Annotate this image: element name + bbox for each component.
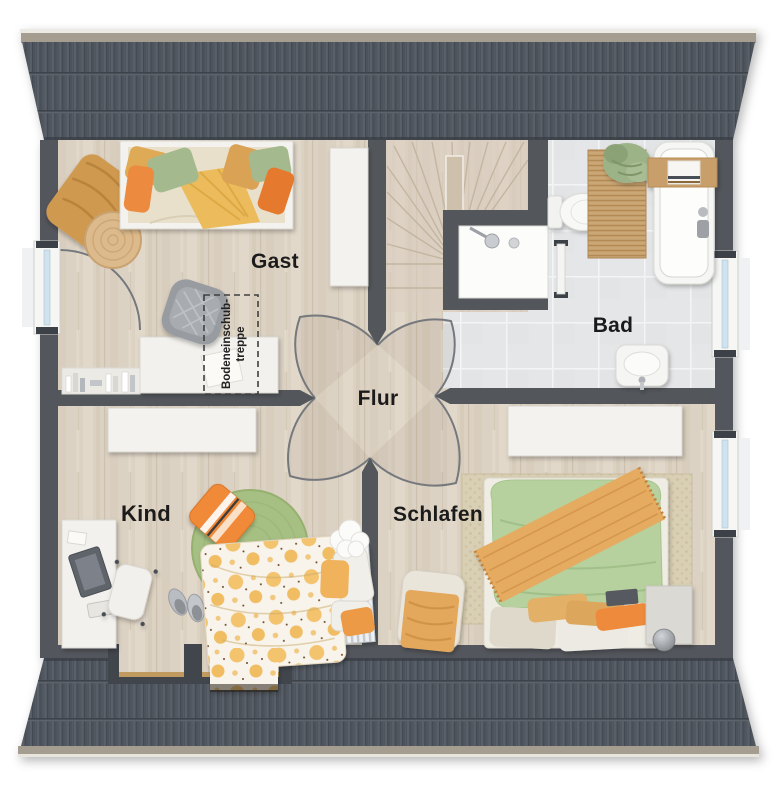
ball-lamp — [653, 629, 675, 651]
attic-hatch-label-line2: treppe — [235, 326, 247, 361]
pillow — [320, 560, 349, 599]
wall-bath-bedroom — [435, 388, 715, 404]
duvet-drape — [210, 648, 278, 690]
tub-faucet — [698, 207, 708, 217]
window-bedroom — [712, 431, 738, 537]
window-guest — [34, 241, 60, 334]
roof-ridge-bottom — [18, 746, 759, 754]
wall-shower-left — [443, 210, 459, 310]
shower-drain — [509, 238, 519, 248]
bath-sink — [616, 345, 668, 390]
bookshelf — [62, 368, 140, 394]
dormer-left-floor — [119, 644, 184, 672]
window-sill-bedroom — [738, 438, 750, 530]
label-bedroom: Schlafen — [393, 503, 483, 526]
caddy-towel — [668, 161, 700, 184]
floorplan-canvas: Bodeneinschub- treppe — [0, 0, 775, 791]
pillow — [340, 606, 376, 637]
label-hall: Flur — [358, 387, 399, 410]
guest-wardrobe — [330, 148, 368, 286]
label-guest: Gast — [251, 250, 299, 273]
window-sill-left — [22, 248, 34, 327]
pouf-towel — [400, 589, 460, 652]
roof-eave-edge-top — [44, 137, 733, 140]
desk-paper — [67, 531, 86, 545]
wall-shower-bottom — [443, 298, 548, 310]
bathtub — [648, 142, 717, 284]
bench-pouf — [396, 569, 466, 653]
window-bath — [712, 251, 738, 357]
label-bath: Bad — [593, 314, 634, 337]
window-sill-bath — [738, 258, 750, 350]
child-dresser — [108, 408, 256, 452]
shower-head — [485, 234, 499, 248]
dormer-left-sill — [119, 672, 184, 677]
roof-ridge-top — [21, 33, 756, 43]
roof-ridge-highlight-bottom — [18, 754, 759, 757]
child-desk — [62, 520, 116, 648]
label-child: Kind — [121, 501, 171, 526]
book — [605, 589, 638, 607]
roof-top — [22, 42, 755, 140]
attic-hatch-label-line1: Bodeneinschub- — [221, 299, 233, 389]
floorplan-svg: Bodeneinschub- treppe — [0, 0, 775, 791]
bedroom-wardrobe — [508, 406, 682, 456]
guest-bed — [120, 141, 296, 229]
shower — [459, 226, 548, 298]
double-bed — [475, 467, 668, 651]
tub-fixture — [697, 220, 709, 238]
wall-guest-stairs — [368, 140, 386, 345]
